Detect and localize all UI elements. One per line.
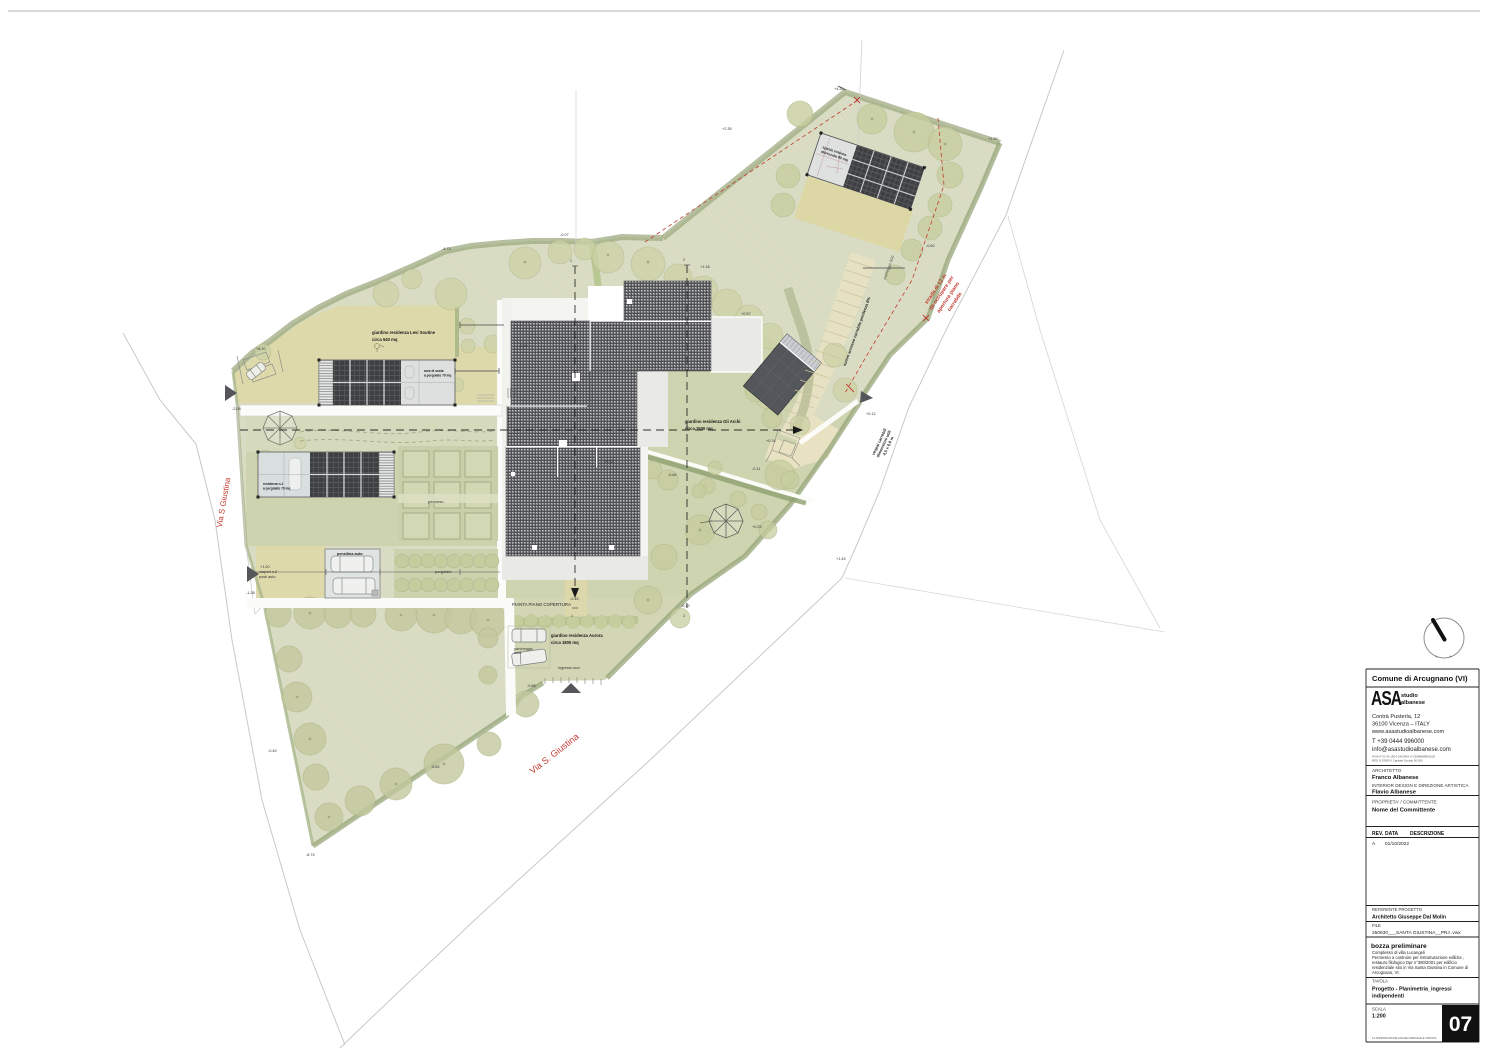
svg-text:+0.35: +0.35 — [766, 439, 776, 443]
svg-text:-0.07: -0.07 — [560, 233, 569, 237]
svg-text:Franco Albanese: Franco Albanese — [1372, 775, 1419, 781]
svg-text:FILE: FILE — [1372, 923, 1381, 928]
svg-text:REV.: REV. — [1372, 831, 1384, 837]
svg-text:a pergolato 70 mq: a pergolato 70 mq — [424, 374, 451, 378]
svg-text:bozza preliminare: bozza preliminare — [1371, 943, 1427, 950]
svg-text:+0.35: +0.35 — [604, 460, 614, 464]
svg-text:LA RIPRODUZIONE ANCHE PARZIALE: LA RIPRODUZIONE ANCHE PARZIALE E VIETATA — [1372, 1036, 1437, 1040]
svg-text:-0.64: -0.64 — [668, 473, 677, 477]
svg-text:36100 Vicenza – ITALY: 36100 Vicenza – ITALY — [1372, 722, 1430, 728]
svg-text:1:200: 1:200 — [1372, 1014, 1386, 1020]
svg-text:-2.08: -2.08 — [232, 407, 241, 411]
svg-text:circa 540 mq: circa 540 mq — [372, 337, 398, 342]
svg-text:-8.74: -8.74 — [306, 853, 315, 857]
svg-text:+1.45: +1.45 — [836, 557, 846, 561]
svg-text:-0.45: -0.45 — [268, 749, 277, 753]
svg-text:2: 2 — [683, 258, 685, 262]
svg-text:-0.45: -0.45 — [570, 597, 579, 601]
svg-text:DATA: DATA — [1385, 831, 1399, 837]
svg-text:auto: auto — [514, 651, 521, 655]
svg-text:albanese: albanese — [1401, 700, 1425, 706]
svg-text:TAVOLA: TAVOLA — [1372, 979, 1388, 984]
svg-text:posti auto: posti auto — [259, 575, 275, 579]
svg-text:2: 2 — [683, 614, 685, 618]
svg-text:ARCHITETTO: ARCHITETTO — [1372, 768, 1402, 773]
svg-text:Flavio Albanese: Flavio Albanese — [1372, 790, 1417, 796]
svg-text:+8.10: +8.10 — [256, 347, 266, 351]
svg-text:ingresso sud: ingresso sud — [558, 666, 580, 670]
svg-text:studio: studio — [1401, 693, 1418, 699]
svg-text:+4.35: +4.35 — [834, 87, 844, 91]
svg-text:-0.12: -0.12 — [681, 604, 690, 608]
svg-text:1: 1 — [570, 259, 572, 263]
svg-text:circa 1500 mq: circa 1500 mq — [685, 426, 713, 431]
svg-text:-0.85: -0.85 — [527, 684, 536, 688]
svg-text:pergolato: pergolato — [435, 569, 452, 574]
svg-text:Nome del Committente: Nome del Committente — [1372, 808, 1436, 814]
svg-text:www.asastudioalbanese.com: www.asastudioalbanese.com — [1371, 729, 1444, 735]
svg-text:giardino residenza Gli Archi: giardino residenza Gli Archi — [685, 419, 740, 424]
svg-text:Progetto - Planimetria_ingress: Progetto - Planimetria_ingressi — [1372, 987, 1452, 993]
svg-text:1: 1 — [571, 614, 573, 618]
svg-text:250630___SANTA GIUSTINA__PRJ .: 250630___SANTA GIUSTINA__PRJ .vwx — [1372, 930, 1461, 936]
svg-text:giardino residenza Aurora: giardino residenza Aurora — [551, 633, 603, 638]
svg-text:REFERENTE PROGETTO: REFERENTE PROGETTO — [1372, 907, 1423, 912]
svg-text:-0.60: -0.60 — [926, 244, 935, 248]
svg-text:T +39 0444 996000: T +39 0444 996000 — [1372, 739, 1425, 745]
svg-text:DESCRIZIONE: DESCRIZIONE — [1410, 831, 1445, 837]
svg-text:01/10/2022: 01/10/2022 — [1385, 841, 1409, 847]
svg-text:+2.35: +2.35 — [722, 127, 732, 131]
svg-text:SCALA: SCALA — [1372, 1007, 1386, 1012]
svg-text:residenza n.1: residenza n.1 — [263, 482, 283, 486]
svg-text:+1.30: +1.30 — [988, 137, 998, 141]
svg-text:-0.11: -0.11 — [752, 467, 760, 471]
svg-text:PIANTA PIANO COPERTURA: PIANTA PIANO COPERTURA — [512, 602, 571, 607]
svg-text:-1.28: -1.28 — [246, 591, 255, 595]
svg-text:-4.73: -4.73 — [442, 247, 451, 251]
svg-text:carport n.2: carport n.2 — [259, 570, 277, 574]
svg-text:ASA: ASA — [1371, 687, 1402, 709]
svg-text:-1.15: -1.15 — [519, 344, 528, 348]
svg-text:giardino residenza Levi Soutin: giardino residenza Levi Soutine — [372, 330, 436, 335]
svg-text:Arcugnano, VI.: Arcugnano, VI. — [1372, 970, 1400, 975]
svg-text:Architetto Giuseppe Dal Molin: Architetto Giuseppe Dal Molin — [1372, 915, 1446, 921]
svg-text:Comune di Arcugnano (VI): Comune di Arcugnano (VI) — [1372, 674, 1468, 683]
svg-text:info@asastudioalbanese.com: info@asastudioalbanese.com — [1372, 747, 1451, 753]
svg-text:REG N 25369 V Capitale Socia: REG N 25369 V Capitale Sociale 50.000 — [1372, 759, 1423, 763]
svg-text:a pergolato 70 mq: a pergolato 70 mq — [263, 487, 290, 491]
svg-text:+0.57: +0.57 — [741, 312, 751, 316]
svg-text:area di sosta: area di sosta — [424, 369, 444, 373]
svg-text:+0.12: +0.12 — [866, 412, 876, 416]
svg-text:-0.62: -0.62 — [431, 765, 440, 769]
svg-text:PROPRIETA' / COMMITTENTE: PROPRIETA' / COMMITTENTE — [1372, 800, 1437, 805]
svg-text:INTERIOR DESIGN E DIREZIONE AR: INTERIOR DESIGN E DIREZIONE ARTISTICA — [1372, 783, 1469, 788]
svg-text:07: 07 — [1449, 1013, 1472, 1036]
svg-text:Contrà Pusterla, 12: Contrà Pusterla, 12 — [1372, 714, 1420, 720]
svg-text:+1.20: +1.20 — [260, 565, 270, 569]
svg-text:pensilina auto: pensilina auto — [337, 552, 363, 556]
svg-text:+1.18: +1.18 — [700, 265, 710, 269]
svg-text:+0.25: +0.25 — [752, 525, 762, 529]
svg-text:circa 1800 mq: circa 1800 mq — [551, 640, 579, 645]
svg-text:indipendenti: indipendenti — [1372, 994, 1405, 1000]
svg-text:percorso: percorso — [428, 499, 444, 504]
